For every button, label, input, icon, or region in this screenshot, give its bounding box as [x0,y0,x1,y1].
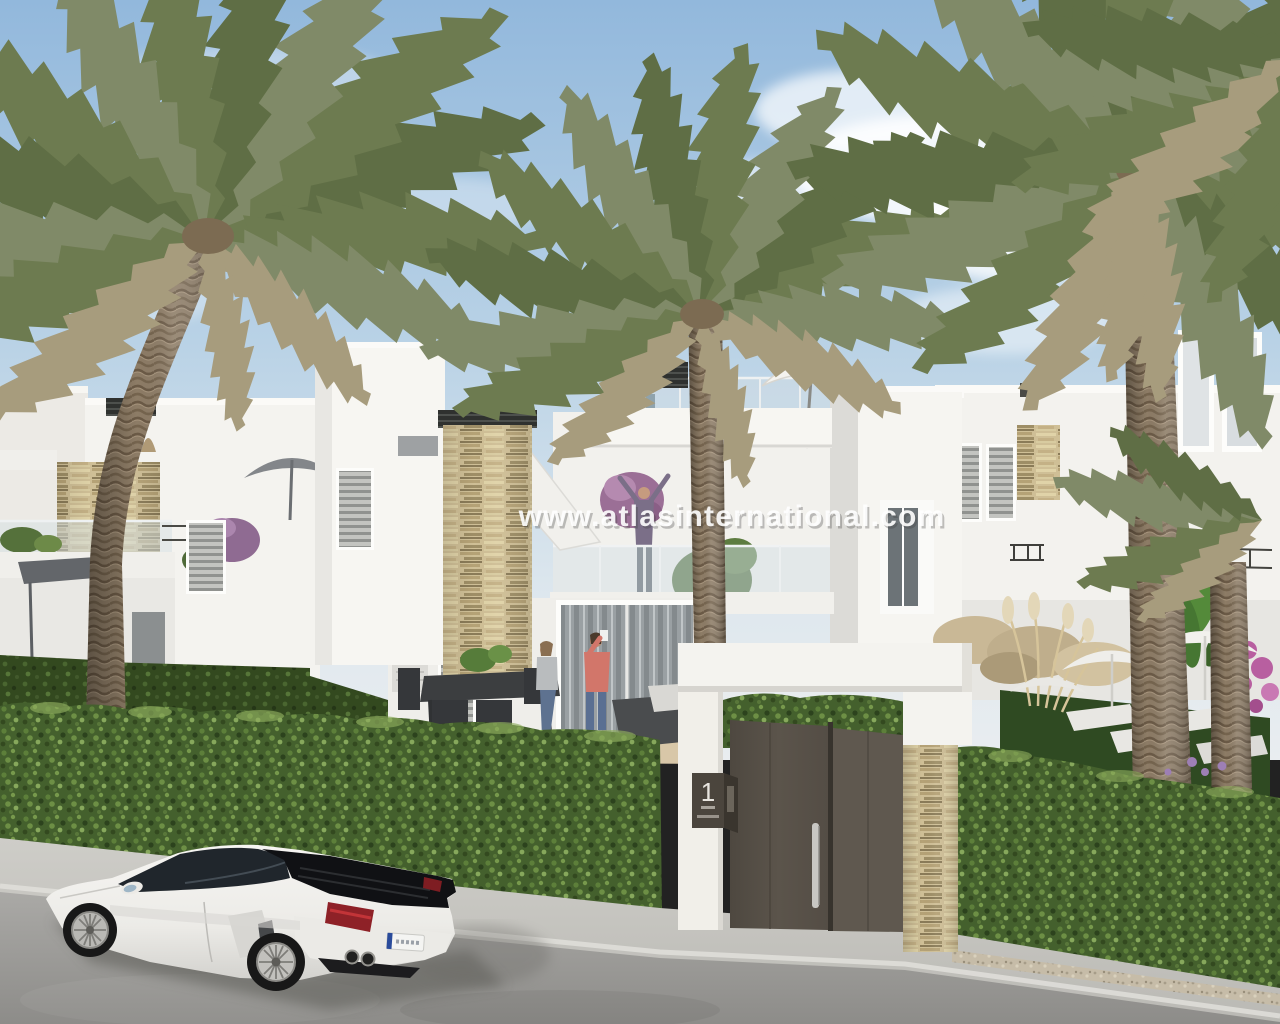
watermark: www.atlasinternational.com www.atlasinte… [518,500,948,536]
entrance-gate: 1 [678,643,972,952]
exhaust-pipe [362,953,375,966]
louvered-door [186,520,226,594]
villa-left-tower [313,342,447,665]
car-wheel-rear [247,933,305,991]
louver-window [986,444,1016,521]
outdoor-cushions [398,436,438,456]
plaque-number: 1 [701,777,715,807]
exhaust-pipe [346,951,359,964]
watermark-text: www.atlasinternational.com [518,500,946,533]
stone-accent [1017,425,1060,500]
gate-stone-pillar [903,745,958,952]
property-render-photo: 1 [0,0,1280,1024]
license-plate [386,933,424,952]
intercom [727,786,734,812]
plaque-subtext-line [697,815,719,818]
louver-window [336,468,374,550]
gate-frame-top [678,643,972,692]
gate-handle [812,823,819,908]
plaque-subtext-line [701,806,715,809]
glass-balustrade [553,545,830,597]
car-wheel-front [63,903,117,957]
gate-frame-right [903,692,972,745]
address-plaque: 1 [692,773,738,833]
